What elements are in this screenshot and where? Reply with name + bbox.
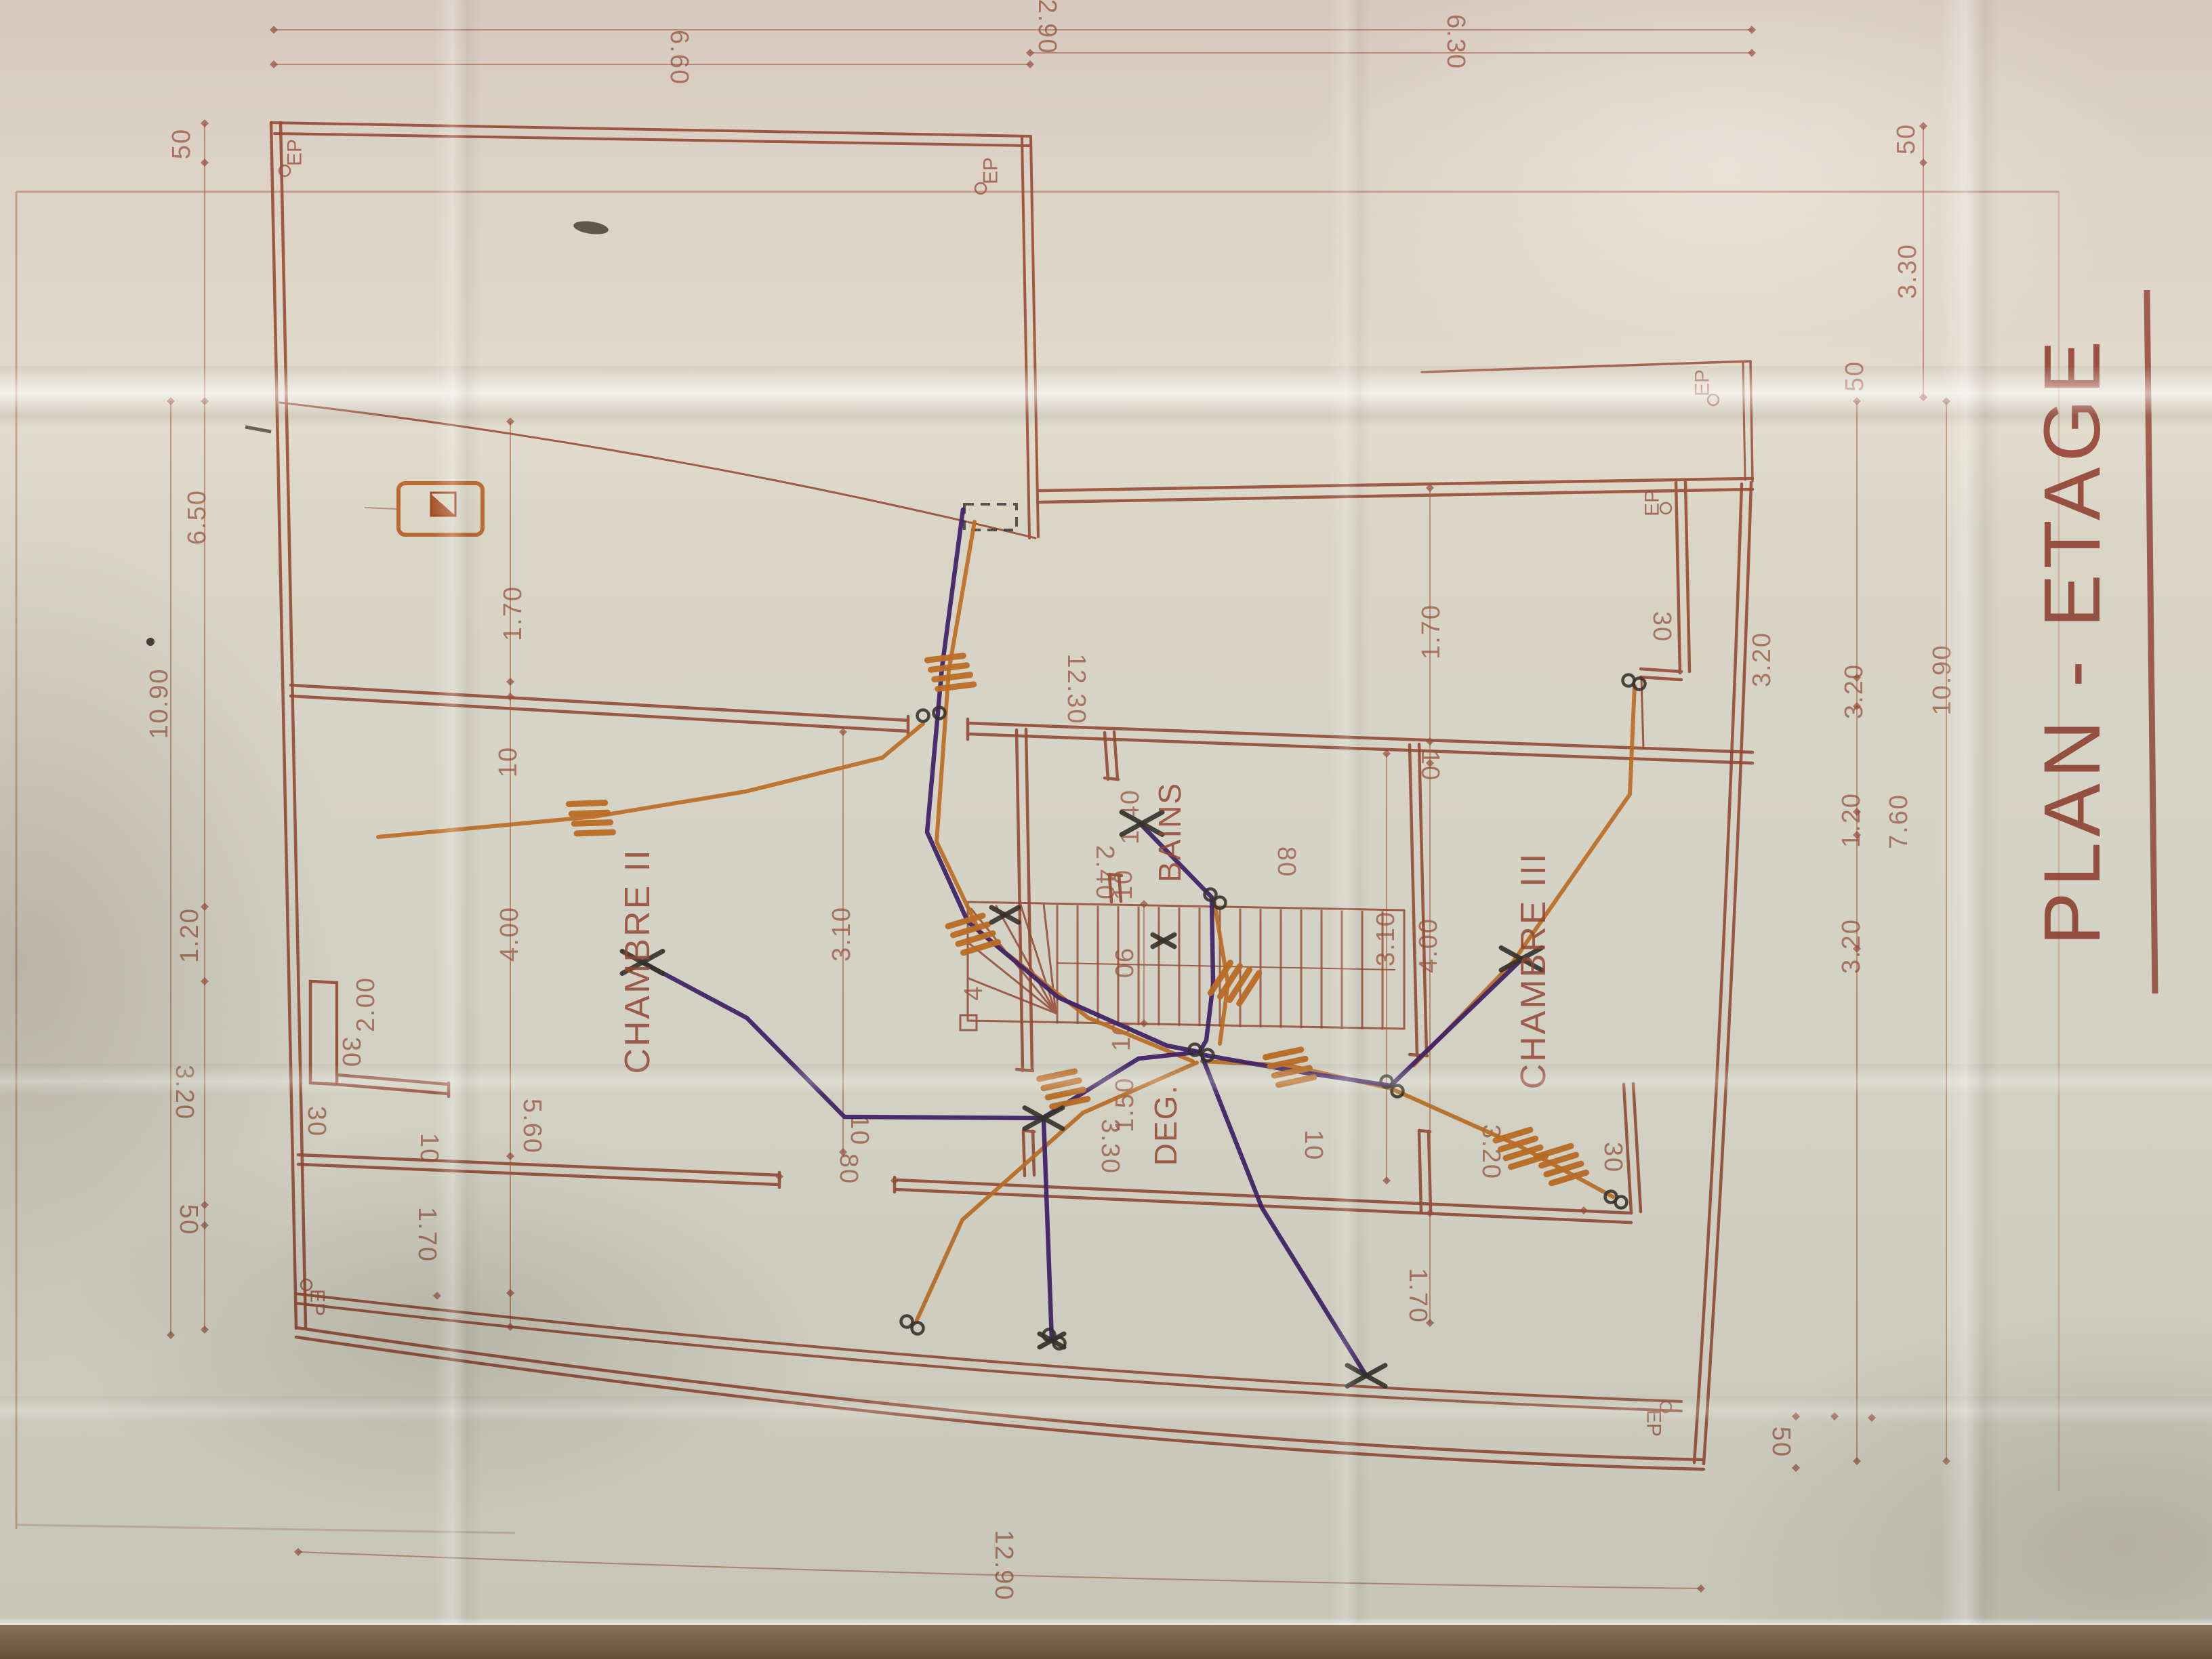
wire-purple [1044, 1120, 1052, 1340]
dimension-tick [294, 1548, 302, 1556]
switch-hatch-icon [1536, 1139, 1586, 1190]
dimension-label: 1.20 [1837, 792, 1866, 848]
dimension-tick [1792, 1464, 1800, 1472]
left-wall [271, 123, 306, 1328]
dimension-label: 90 [1109, 948, 1138, 979]
dimension-label: 12.90 [1033, 0, 1061, 55]
dimension-label: 50 [1892, 123, 1921, 155]
staircase [960, 902, 1404, 1030]
dimension-tick [1942, 397, 1950, 405]
dimension-label: 50 [167, 128, 196, 159]
ep-downpipe-labels: EPEPEPEPEPEP [279, 139, 1719, 1437]
dimension-label: 50 [1767, 1427, 1795, 1458]
dimension-label: 6.30 [1441, 14, 1470, 70]
photographed-blueprint: 12.906.606.30506.5010.901.203.20501.7010… [0, 0, 2212, 1659]
ep-label: EP [980, 157, 1002, 184]
dimension-label: 80 [834, 1153, 863, 1185]
room-label-chambre2: CHAMBRE II [618, 848, 657, 1073]
dimension-label: 10.90 [1928, 644, 1957, 715]
dimension-label: 3.30 [1893, 243, 1922, 299]
vent-symbol [398, 483, 483, 535]
dimension-label: 1.70 [1404, 1268, 1432, 1324]
dimension-line [365, 508, 397, 509]
dimension-label: 6.50 [183, 489, 211, 545]
dimension-lines [171, 30, 1946, 1589]
dimension-label: 30 [302, 1106, 331, 1137]
dimension-tick [270, 26, 278, 34]
socket-icon [1634, 678, 1645, 690]
dimension-tick [1426, 1209, 1434, 1217]
dimension-label: 10 [1299, 1130, 1328, 1161]
dimension-label: 1.70 [1417, 604, 1446, 659]
dimension-tick [201, 159, 209, 167]
dimension-tick [1026, 60, 1034, 68]
dimension-tick [1830, 1412, 1839, 1420]
dimension-label: 3.20 [1748, 632, 1776, 687]
dimension-label: 1.70 [499, 586, 527, 641]
page-title: PLAN - ETAGE [2028, 335, 2117, 945]
dimension-label: 10 [494, 746, 523, 777]
table-surface [0, 1625, 2212, 1659]
dimension-tick [1748, 26, 1756, 34]
title-block: PLAN - ETAGE [2028, 290, 2155, 994]
dimension-label: 4 [960, 985, 988, 1000]
dimension-label: 30 [337, 1037, 365, 1068]
room-label-deg: DEG. [1148, 1084, 1183, 1166]
dimension-tick [1382, 1176, 1391, 1185]
dimension-tick [1426, 737, 1434, 745]
front-wall [1040, 478, 1753, 748]
dimension-label: 30 [1599, 1142, 1627, 1173]
ep-label: EP [1643, 1410, 1665, 1437]
socket-icon [901, 1316, 913, 1328]
dimension-tick [167, 1331, 175, 1339]
annex-walls [271, 123, 1038, 538]
dimension-label: 50 [174, 1204, 203, 1235]
dimension-tick [506, 678, 514, 686]
dimension-label: 10 [1109, 869, 1138, 900]
dimension-label: 3.10 [827, 906, 856, 962]
dimension-tick [270, 60, 278, 68]
dimension-tick [506, 1152, 514, 1160]
dimension-tick [1853, 1457, 1861, 1465]
dimension-label: 10 [1416, 750, 1444, 781]
dimension-tick [201, 119, 209, 127]
dimension-tick [433, 1292, 441, 1300]
dimension-label: 4.00 [1414, 918, 1443, 973]
dimension-label: 7.60 [1885, 794, 1913, 849]
dimension-tick [201, 1326, 209, 1334]
hatch-stroke [577, 824, 613, 841]
room-label-bains: BAINS [1152, 782, 1187, 882]
dimension-tick [1748, 49, 1756, 57]
dimension-label: 6.60 [665, 30, 693, 85]
dimension-tick [1792, 1412, 1800, 1420]
ep-label: EP [1641, 489, 1664, 516]
dimension-tick [1868, 1414, 1876, 1422]
dimension-tick [201, 397, 209, 405]
dimension-label: 10 [415, 1133, 443, 1164]
dimension-label: 50 [1841, 361, 1869, 392]
dimension-tick [506, 1289, 514, 1297]
floor-plan-drawing: 12.906.606.30506.5010.901.203.20501.7010… [0, 0, 2212, 1659]
ep-label: EP [1692, 369, 1714, 396]
wire-orange [378, 724, 923, 837]
dimension-label: 2.00 [352, 977, 380, 1032]
socket-icon [912, 1323, 924, 1334]
dimension-tick [1853, 397, 1861, 405]
dimension-tick [167, 397, 175, 405]
dimension-label: 12.30 [1062, 653, 1090, 724]
light-x-icon [1347, 1366, 1385, 1387]
dimension-label: 5.60 [518, 1099, 546, 1154]
dimension-tick [506, 693, 514, 701]
hatch-stroke [569, 795, 605, 812]
dimension-label: 80 [1272, 846, 1300, 878]
dimension-label: 4.00 [495, 906, 524, 962]
switch-hatch-icon [948, 909, 998, 960]
dimension-label: 3.20 [1837, 918, 1866, 974]
dimension-tick [1140, 1019, 1148, 1027]
socket-icon [1616, 1197, 1627, 1208]
dimension-tick [890, 1176, 899, 1185]
dimension-tick [1942, 1457, 1950, 1465]
title-underline [2147, 290, 2155, 994]
socket-icon [918, 710, 929, 722]
dimension-label: 10.90 [145, 668, 173, 739]
dimension-label: 3.20 [170, 1065, 199, 1120]
dimension-label: 10 [845, 1115, 874, 1146]
dimension-labels: 12.906.606.30506.5010.901.203.20501.7010… [145, 0, 1957, 1601]
dimension-tick [506, 417, 514, 426]
dimension-label: 3.10 [1372, 911, 1400, 966]
dimension-tick [1580, 1206, 1588, 1214]
wire-purple [1203, 1059, 1366, 1376]
dimension-label: 12.90 [989, 1530, 1018, 1601]
dimension-tick [1919, 159, 1927, 167]
electrical-wiring-annotations [378, 510, 1645, 1386]
dimension-label: 1.20 [176, 907, 204, 963]
dimension-tick [1140, 900, 1148, 908]
dimension-tick [1697, 1584, 1705, 1593]
rear-wall [298, 1084, 1641, 1223]
dimension-label: 3.20 [1840, 663, 1868, 719]
dimension-label: 3.30 [1096, 1119, 1124, 1174]
dimension-tick [1919, 393, 1927, 401]
ep-label: EP [284, 139, 306, 166]
dimension-label: 30 [1647, 611, 1676, 642]
dimension-tick [506, 1323, 514, 1331]
dimension-label: 1.70 [413, 1207, 441, 1263]
room-label-chambre3: CHAMBRE III [1514, 852, 1553, 1090]
light-x-icon [1153, 935, 1174, 947]
ep-label: EP [306, 1289, 329, 1316]
dimension-tick [201, 977, 209, 985]
